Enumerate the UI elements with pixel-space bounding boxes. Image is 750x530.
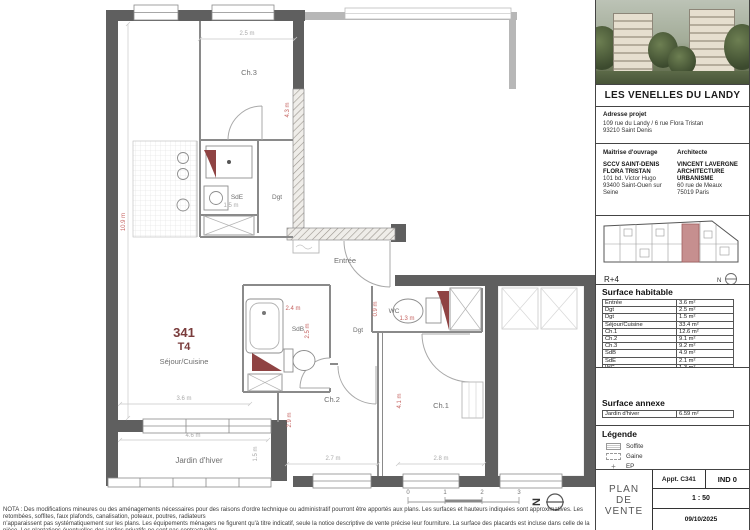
architect-address: 75019 Paris bbox=[677, 190, 742, 197]
room-jardin: Jardin d'hiver bbox=[175, 456, 223, 465]
legend-label: Gaine bbox=[626, 453, 643, 460]
room-dgt2: Dgt bbox=[353, 327, 363, 334]
key-plan: R+4 N bbox=[596, 216, 749, 285]
apartment-ref: Appt. C341 bbox=[653, 470, 706, 488]
project-title: LES VENELLES DU LANDY bbox=[596, 85, 749, 107]
table-row: Dgt2.5 m² bbox=[603, 307, 734, 314]
revision-index: IND 0 bbox=[706, 470, 749, 488]
dim-sde-width: 1.5 m bbox=[223, 203, 238, 209]
scale-bar: 0 1 2 3 bbox=[406, 490, 521, 504]
drawing-date: 09/10/2025 bbox=[653, 509, 749, 530]
room-sdb: SdB bbox=[292, 326, 304, 333]
spacer bbox=[596, 368, 749, 396]
surface-annexe-section: Surface annexe Jardin d'hiver6.59 m² bbox=[596, 396, 749, 426]
table-row: SdE2.1 m² bbox=[603, 357, 734, 364]
dim-ch2-width: 2.7 m bbox=[325, 456, 340, 462]
surface-annexe-title: Surface annexe bbox=[602, 398, 743, 408]
toilet-bowl bbox=[293, 351, 315, 371]
legend-title: Légende bbox=[602, 429, 743, 439]
floor-plan: 2.5 m 4.3 m 10.9 m 3.6 m 1.5 m 2.4 m 2.5… bbox=[0, 0, 595, 530]
dim-ch2-height: 2.9 m bbox=[287, 412, 293, 427]
nota-disclaimer: NOTA : Des modifications mineures ou des… bbox=[3, 507, 591, 530]
scale-tick-3: 3 bbox=[517, 490, 521, 496]
address-line1: 109 rue du Landy / 6 rue Flora Tristan bbox=[603, 121, 742, 128]
room-wc: WC bbox=[389, 308, 400, 315]
architect-address: 60 rue de Meaux bbox=[677, 183, 742, 190]
dim-sdb-width: 2.4 m bbox=[285, 306, 300, 312]
room-ch1: Ch.1 bbox=[433, 401, 449, 410]
legend-item-soffite: Soffite bbox=[606, 441, 743, 451]
owner-name: FLORA TRISTAN bbox=[603, 169, 673, 176]
svg-text:N: N bbox=[531, 498, 543, 506]
room-entree: Entrée bbox=[334, 256, 356, 265]
owner-name: SCCV SAINT-DENIS bbox=[603, 162, 673, 169]
walls bbox=[106, 10, 595, 487]
toilet-tank bbox=[284, 349, 293, 372]
dimension-labels: 2.5 m 4.3 m 10.9 m 3.6 m 1.5 m 2.4 m 2.5… bbox=[121, 31, 449, 462]
closet bbox=[462, 382, 483, 418]
wc-toilet-tank bbox=[426, 298, 441, 323]
title-column: LES VENELLES DU LANDY Adresse projet 109… bbox=[595, 0, 750, 530]
owner-block: Maîtrise d'ouvrage SCCV SAINT-DENIS FLOR… bbox=[603, 149, 673, 210]
owner-address: 101 bd. Victor Hugo bbox=[603, 176, 673, 183]
insulated-walls bbox=[287, 89, 395, 240]
surface-annexe-table: Jardin d'hiver6.59 m² bbox=[602, 410, 734, 418]
ep-icon: + bbox=[606, 463, 621, 470]
plan-de-vente-sheet: 2.5 m 4.3 m 10.9 m 3.6 m 1.5 m 2.4 m 2.5… bbox=[0, 0, 750, 530]
legend-item-ep: + EP bbox=[606, 461, 743, 470]
legend-item-gaine: Gaine bbox=[606, 451, 743, 461]
level-label: R+4 bbox=[604, 275, 619, 284]
dim-ch1-height: 4.1 m bbox=[397, 393, 403, 408]
dim-sdb-height: 2.5 m bbox=[305, 323, 311, 338]
doors bbox=[228, 106, 470, 404]
project-photo bbox=[596, 0, 749, 85]
table-row: Entrée3.6 m² bbox=[603, 300, 734, 307]
owner-address: 93400 Saint-Ouen sur Seine bbox=[603, 183, 673, 197]
project-address: Adresse projet 109 rue du Landy / 6 rue … bbox=[596, 107, 749, 144]
drawing-scale: 1 : 50 bbox=[653, 489, 749, 509]
table-row: Jardin d'hiver6.59 m² bbox=[603, 411, 734, 418]
north-icon: N bbox=[715, 272, 741, 285]
dim-sejour-height: 10.9 m bbox=[121, 213, 127, 231]
surface-habitable-section: Surface habitable Entrée3.6 m²Dgt2.5 m²D… bbox=[596, 285, 749, 368]
soffite-icon bbox=[606, 443, 621, 450]
nota-line1: NOTA : Des modifications mineures ou des… bbox=[3, 507, 591, 521]
title-block: PLAN DE VENTE Appt. C341 IND 0 1 : 50 09… bbox=[596, 470, 749, 530]
stakeholders: Maîtrise d'ouvrage SCCV SAINT-DENIS FLOR… bbox=[596, 144, 749, 216]
dim-ch3-width: 2.5 m bbox=[239, 31, 254, 37]
surface-habitable-title: Surface habitable bbox=[602, 287, 743, 297]
dim-ch3-height: 4.3 m bbox=[285, 102, 291, 117]
architect-label: Architecte bbox=[677, 149, 742, 156]
dim-ch1-width: 2.8 m bbox=[433, 456, 448, 462]
table-row: Dgt1.5 m² bbox=[603, 314, 734, 321]
document-type: PLAN DE VENTE bbox=[596, 470, 653, 530]
room-sde: SdE bbox=[231, 194, 244, 201]
table-row: Ch.39.2 m² bbox=[603, 343, 734, 350]
table-row: SdB4.9 m² bbox=[603, 350, 734, 357]
svg-text:N: N bbox=[717, 278, 721, 284]
room-dgt1: Dgt bbox=[272, 194, 282, 201]
room-sejour: Séjour/Cuisine bbox=[160, 357, 209, 366]
architect-block: Architecte VINCENT LAVERGNE ARCHITECTURE… bbox=[677, 149, 742, 210]
address-line2: 93210 Saint Denis bbox=[603, 128, 742, 135]
dim-jardin-width: 4.6 m bbox=[185, 433, 200, 439]
highlighted-unit bbox=[682, 224, 699, 262]
dim-wc-height: 0.9 m bbox=[373, 301, 379, 316]
architect-name: VINCENT LAVERGNE bbox=[677, 162, 742, 169]
scale-tick-2: 2 bbox=[480, 490, 484, 496]
architect-name: ARCHITECTURE URBANISME bbox=[677, 169, 742, 183]
soffites bbox=[204, 150, 449, 371]
table-row: Ch.112.6 m² bbox=[603, 328, 734, 335]
floor-plan-drawing: 2.5 m 4.3 m 10.9 m 3.6 m 1.5 m 2.4 m 2.5… bbox=[0, 0, 595, 530]
owner-label: Maîtrise d'ouvrage bbox=[603, 149, 673, 156]
address-label: Adresse projet bbox=[603, 111, 742, 118]
legend-label: Soffite bbox=[626, 443, 643, 450]
room-ch3: Ch.3 bbox=[241, 68, 257, 77]
gaine-icon bbox=[606, 453, 621, 460]
legend-label: EP bbox=[626, 463, 634, 470]
key-plan-drawing bbox=[600, 219, 745, 265]
dim-jardin-height: 1.5 m bbox=[253, 446, 259, 461]
grass bbox=[596, 71, 749, 84]
building-left bbox=[613, 13, 653, 77]
unit-number: 341 bbox=[173, 325, 195, 340]
scale-tick-1: 1 bbox=[443, 490, 447, 496]
scale-tick-0: 0 bbox=[406, 490, 410, 496]
dim-sejour-width: 3.6 m bbox=[176, 396, 191, 402]
unit-type: T4 bbox=[178, 341, 192, 353]
nota-line2: n'apparaissent pas systématiquement sur … bbox=[3, 521, 591, 530]
dim-wc-width: 1.3 m bbox=[399, 316, 414, 322]
table-row: Ch.29.1 m² bbox=[603, 336, 734, 343]
table-row: Séjour/Cuisine33.4 m² bbox=[603, 321, 734, 328]
room-ch2: Ch.2 bbox=[324, 395, 340, 404]
legend-section: Légende Soffite Gaine + EP bbox=[596, 426, 749, 470]
surface-habitable-table: Entrée3.6 m²Dgt2.5 m²Dgt1.5 m²Séjour/Cui… bbox=[602, 299, 734, 368]
